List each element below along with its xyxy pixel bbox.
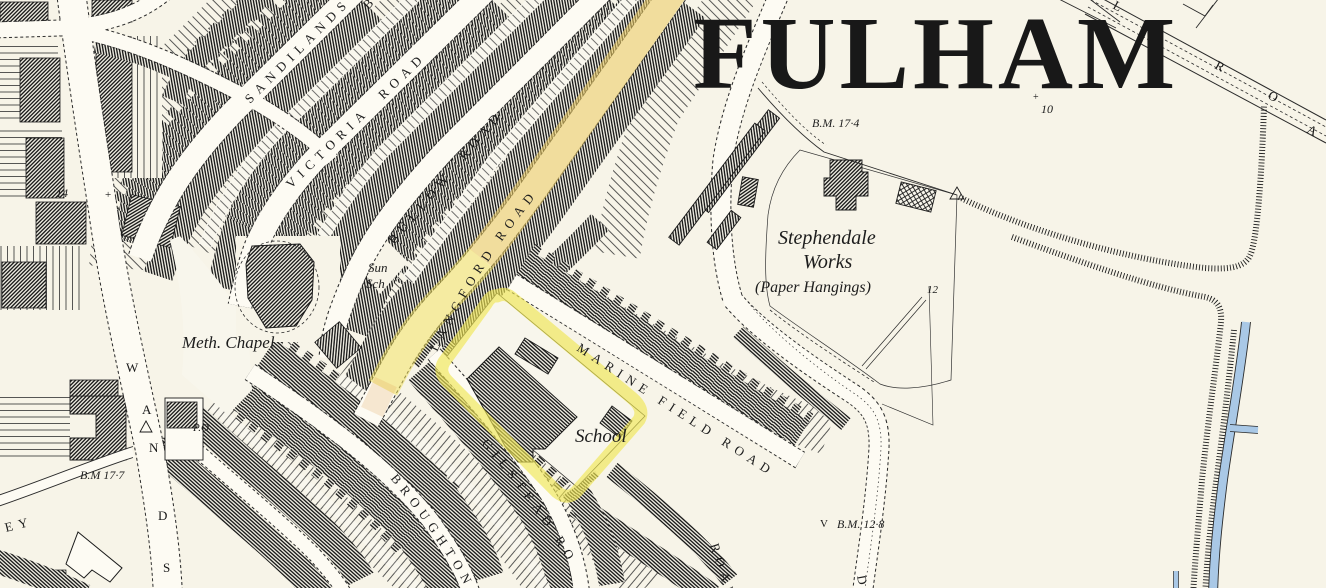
svg-text:Meth. Chapel: Meth. Chapel (181, 333, 275, 352)
svg-text:+: + (1033, 92, 1039, 103)
svg-text:(Paper Hangings): (Paper Hangings) (755, 279, 871, 296)
svg-text:S: S (163, 560, 176, 575)
svg-text:Sun: Sun (368, 260, 388, 275)
svg-text:Stephendale: Stephendale (778, 227, 876, 249)
svg-text:B.M 17·7: B.M 17·7 (80, 468, 125, 482)
svg-text:FULHAM: FULHAM (693, 0, 1179, 111)
svg-text:V: V (820, 518, 828, 530)
svg-text:14: 14 (56, 186, 68, 200)
svg-text:B.M. 17·4: B.M. 17·4 (812, 116, 859, 130)
svg-text:D: D (854, 574, 871, 588)
svg-text:P.O: P.O (192, 422, 209, 434)
svg-text:D: D (158, 508, 173, 523)
svg-text:W: W (126, 360, 144, 375)
svg-text:School: School (575, 426, 627, 447)
svg-text:+: + (105, 189, 111, 201)
svg-text:12: 12 (927, 284, 939, 296)
svg-text:A: A (142, 402, 157, 417)
svg-text:B.M. 12·8: B.M. 12·8 (837, 517, 884, 531)
svg-text:10: 10 (1041, 102, 1053, 116)
svg-text:Works: Works (803, 251, 852, 273)
svg-text:Sch: Sch (366, 276, 385, 291)
svg-text:N: N (149, 440, 164, 455)
